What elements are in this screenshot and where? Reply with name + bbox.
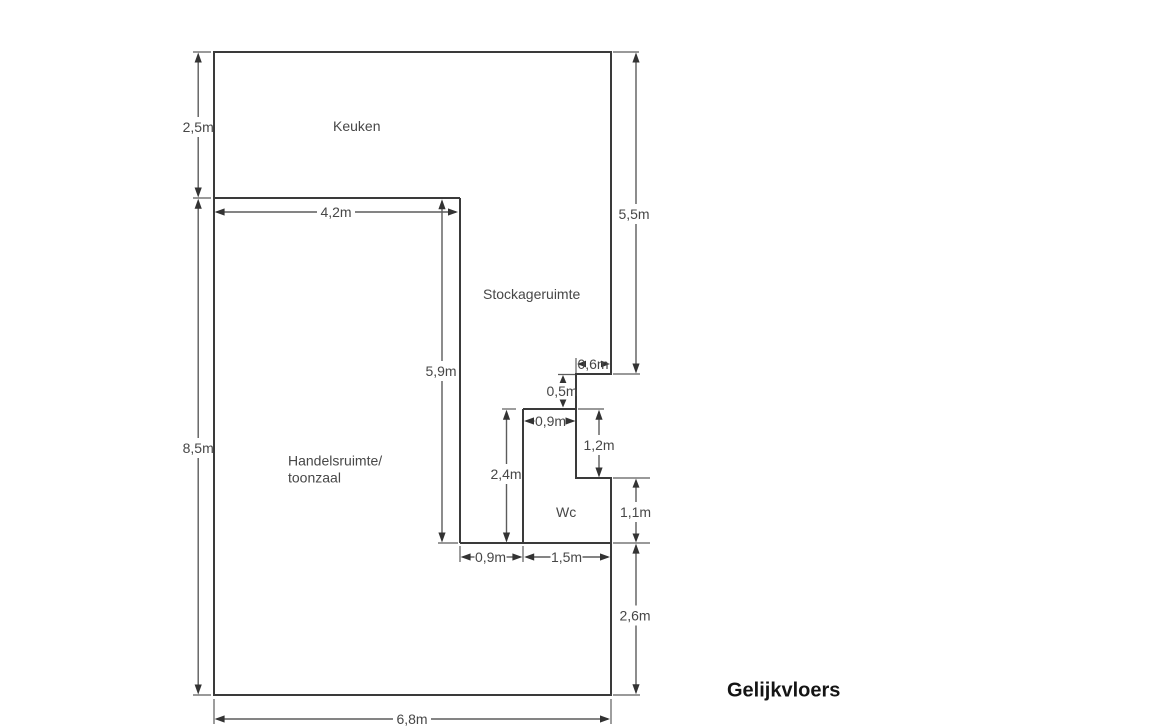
svg-text:0,5m: 0,5m xyxy=(546,383,577,399)
svg-text:8,5m: 8,5m xyxy=(183,440,214,456)
svg-text:4,2m: 4,2m xyxy=(320,204,351,220)
svg-text:0,9m: 0,9m xyxy=(475,549,506,565)
svg-text:Wc: Wc xyxy=(556,504,576,520)
svg-text:toonzaal: toonzaal xyxy=(288,470,341,486)
svg-text:5,5m: 5,5m xyxy=(618,206,649,222)
svg-text:5,9m: 5,9m xyxy=(425,363,456,379)
svg-text:0,6m: 0,6m xyxy=(577,356,608,372)
svg-text:2,6m: 2,6m xyxy=(619,608,650,624)
svg-text:Gelijkvloers: Gelijkvloers xyxy=(727,680,840,702)
svg-text:Handelsruimte/: Handelsruimte/ xyxy=(288,453,382,469)
svg-text:2,4m: 2,4m xyxy=(490,466,521,482)
svg-text:1,5m: 1,5m xyxy=(551,549,582,565)
svg-text:Stockageruimte: Stockageruimte xyxy=(483,286,580,302)
svg-text:6,8m: 6,8m xyxy=(396,711,427,727)
svg-text:1,2m: 1,2m xyxy=(583,437,614,453)
svg-text:Keuken: Keuken xyxy=(333,118,380,134)
svg-text:1,1m: 1,1m xyxy=(620,504,651,520)
svg-text:2,5m: 2,5m xyxy=(183,119,214,135)
svg-text:0,9m: 0,9m xyxy=(535,413,566,429)
